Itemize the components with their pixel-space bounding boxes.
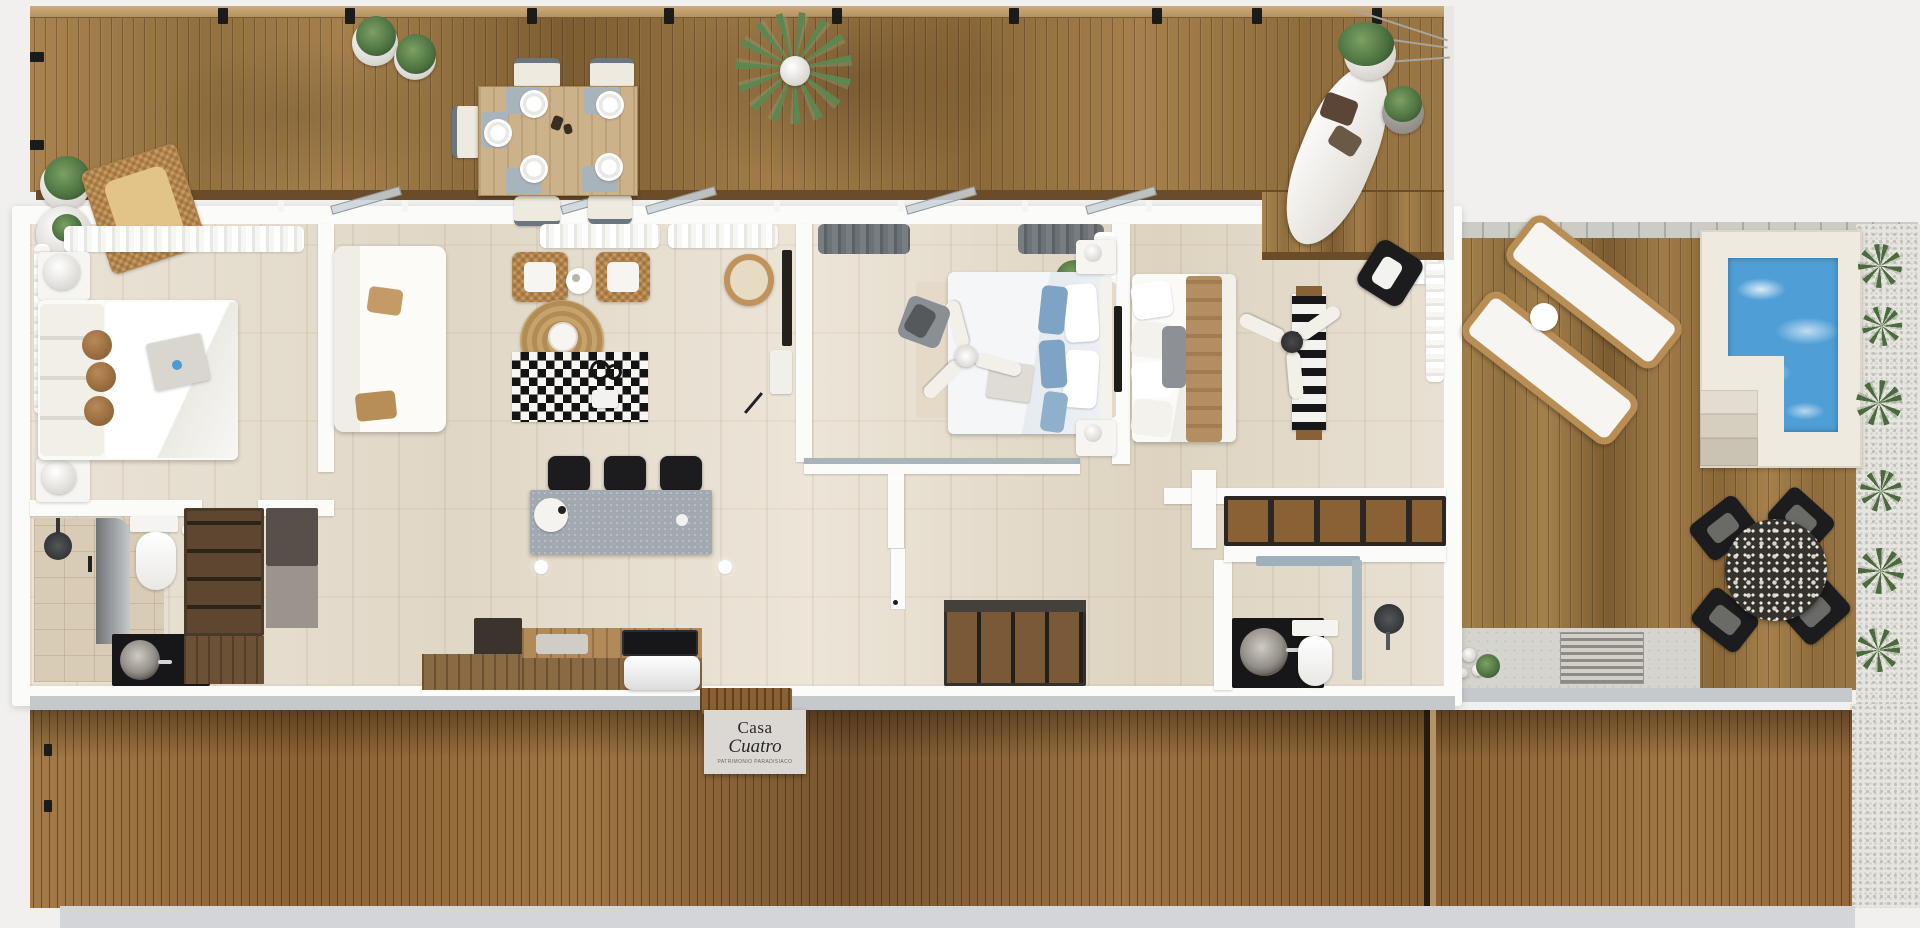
- bed2-drape: [818, 224, 910, 254]
- sofa-pillow: [366, 286, 403, 316]
- bed2-pillow-blue: [1038, 285, 1069, 335]
- side-table-round: [566, 268, 592, 294]
- bed1-curtain: [64, 226, 304, 252]
- roof-clip: [44, 800, 52, 812]
- hall-wardrobe-top: [944, 600, 1086, 612]
- bath2-stone-sink: [1240, 628, 1288, 676]
- island-sink-dot: [676, 514, 688, 526]
- gravel-strip-lower: [1850, 704, 1920, 908]
- ceiling-light: [534, 560, 548, 574]
- bed2-tv: [1114, 306, 1122, 392]
- bar-stool: [660, 456, 702, 492]
- checkered-rug: [512, 352, 648, 422]
- wall-hall-top-cap: [804, 458, 1080, 464]
- pergola-clip: [1009, 8, 1019, 24]
- bar-stool: [548, 456, 590, 492]
- lounger-side-table: [1530, 303, 1558, 331]
- pergola-clip: [832, 8, 842, 24]
- pergola-clip-left: [30, 140, 44, 150]
- bed1-pillow-round: [82, 330, 112, 360]
- island-faucet: [558, 506, 566, 514]
- living-curtain: [668, 224, 778, 248]
- glass-facade-band: [36, 200, 1444, 212]
- living-tv: [782, 250, 792, 346]
- sign-tagline: PATRIMONIO PARADISIACO: [718, 759, 793, 765]
- bed3-gray-cushion: [1162, 326, 1186, 388]
- pergola-clip-left: [30, 52, 44, 62]
- bath2-shower-head: [1374, 604, 1404, 634]
- bath1-toilet: [136, 532, 176, 590]
- dinner-plate: [484, 119, 512, 147]
- ceiling-light: [718, 560, 732, 574]
- pergola-clip: [345, 8, 355, 24]
- dinner-plate: [595, 153, 623, 181]
- wall-bed1-living: [318, 224, 334, 472]
- bar-stool: [604, 456, 646, 492]
- bed3-curtain-right: [1426, 262, 1444, 382]
- armchair-cushion: [524, 262, 556, 292]
- bed3-runner-cap: [1296, 430, 1322, 440]
- bed2-headboard: [1100, 276, 1112, 430]
- dinner-plate: [520, 155, 548, 183]
- hanging-chair: [724, 254, 774, 306]
- hammock-plant: [1384, 86, 1422, 122]
- hammock-plant: [1338, 22, 1394, 66]
- kitchen-sink-white: [624, 656, 700, 690]
- living-console: [770, 350, 792, 394]
- rug-decor-tray: [592, 390, 618, 408]
- bath2-shower-arm: [1386, 632, 1390, 650]
- wall-bath1-top-a: [30, 500, 202, 516]
- walkway-grate: [1560, 632, 1644, 684]
- fan-hub: [955, 345, 977, 367]
- pergola-clip: [1252, 8, 1262, 24]
- bed1-lamp: [44, 254, 80, 290]
- bed2-pillow-blue: [1038, 339, 1067, 389]
- bath1-wardrobe: [184, 508, 264, 636]
- side-deck-edge-band: [1456, 688, 1852, 702]
- bath2-glass-cap: [1256, 556, 1360, 566]
- bath1-wardrobe-lower: [184, 636, 264, 684]
- top-deck-right-fascia: [1444, 6, 1454, 260]
- pergola-clip: [664, 8, 674, 24]
- dinner-plate: [520, 90, 548, 118]
- pergola-clip: [527, 8, 537, 24]
- dinner-plate: [596, 91, 624, 119]
- bath1-toilet-shelf: [130, 516, 178, 532]
- sofa-pillow: [355, 390, 398, 422]
- side-table-cup: [572, 274, 580, 282]
- jute-rug-table: [548, 322, 578, 352]
- bath2-wardrobe: [1224, 496, 1446, 546]
- bed2-lamp: [1084, 424, 1102, 442]
- bed3-pillow: [1130, 398, 1174, 439]
- hall-door-handle: [893, 600, 898, 605]
- hall-wardrobe: [944, 600, 1086, 686]
- bed1-pillow-round: [84, 396, 114, 426]
- terrace-plant: [356, 16, 396, 56]
- casa-cuatro-sign: Casa Cuatro PATRIMONIO PARADISIACO: [704, 710, 806, 774]
- bed3-runner-cap: [1296, 286, 1322, 296]
- bed1-lamp: [42, 460, 76, 494]
- sign-line2: Cuatro: [728, 737, 781, 757]
- gravel-plant: [1858, 244, 1902, 288]
- bed2-lamp: [1084, 244, 1102, 262]
- fan-hub: [1281, 331, 1303, 353]
- bath1-grab-bar: [88, 556, 92, 572]
- pool-step: [1700, 438, 1758, 466]
- pool-step: [1700, 390, 1758, 414]
- bath1-faucet: [158, 660, 172, 664]
- terrace-plant: [396, 34, 436, 74]
- armchair-cushion: [607, 262, 639, 292]
- bath1-partition: [96, 518, 130, 644]
- dining-chair: [588, 194, 632, 224]
- wall-bath2-stub: [1192, 470, 1216, 548]
- wall-living-bed2: [796, 224, 812, 462]
- bottom-path: [60, 906, 1855, 928]
- wall-hall-stub: [888, 474, 904, 548]
- walkway-plant: [1476, 654, 1500, 678]
- bath1-closet-gray-lower: [266, 566, 318, 628]
- walkway-stone: [1462, 648, 1476, 662]
- bed1-pillow-round: [86, 362, 116, 392]
- bath1-shower-head: [44, 532, 72, 560]
- roof-clip: [44, 744, 52, 756]
- palm-pot: [780, 56, 810, 86]
- wall-bath2-left: [1214, 560, 1232, 690]
- dining-chair: [514, 196, 560, 226]
- rug-decor-ring: [606, 364, 622, 380]
- cooktop: [622, 630, 698, 656]
- bath1-closet-gray: [266, 508, 318, 566]
- deck-front-fascia: [36, 190, 1446, 200]
- pool-step: [1700, 414, 1758, 438]
- pergola-clip: [1152, 8, 1162, 24]
- island-tray: [534, 498, 568, 532]
- kitchen-counter-left: [422, 654, 522, 690]
- bath2-toilet: [1292, 620, 1338, 636]
- bath2-shower-glass: [1352, 560, 1362, 680]
- bath1-shower-arm: [56, 518, 60, 534]
- patio-table-terrazzo: [1725, 519, 1827, 621]
- floor-plan-render: Casa Cuatro PATRIMONIO PARADISIACO: [0, 0, 1920, 928]
- hammock-deck-fascia: [1262, 252, 1448, 260]
- bed1-tray-dot: [172, 360, 182, 370]
- roof-deck-seam-light: [1430, 710, 1436, 908]
- bath1-stone-sink: [120, 640, 160, 680]
- roof-deck-shadow: [30, 710, 1852, 758]
- pergola-clip: [218, 8, 228, 24]
- bed3-throw: [1186, 276, 1222, 442]
- kitchen-mat: [536, 634, 588, 654]
- sign-line1: Casa: [737, 719, 772, 737]
- bed3-pillow: [1130, 279, 1175, 320]
- bath2-toilet-bowl: [1298, 636, 1332, 686]
- living-curtain: [540, 224, 660, 248]
